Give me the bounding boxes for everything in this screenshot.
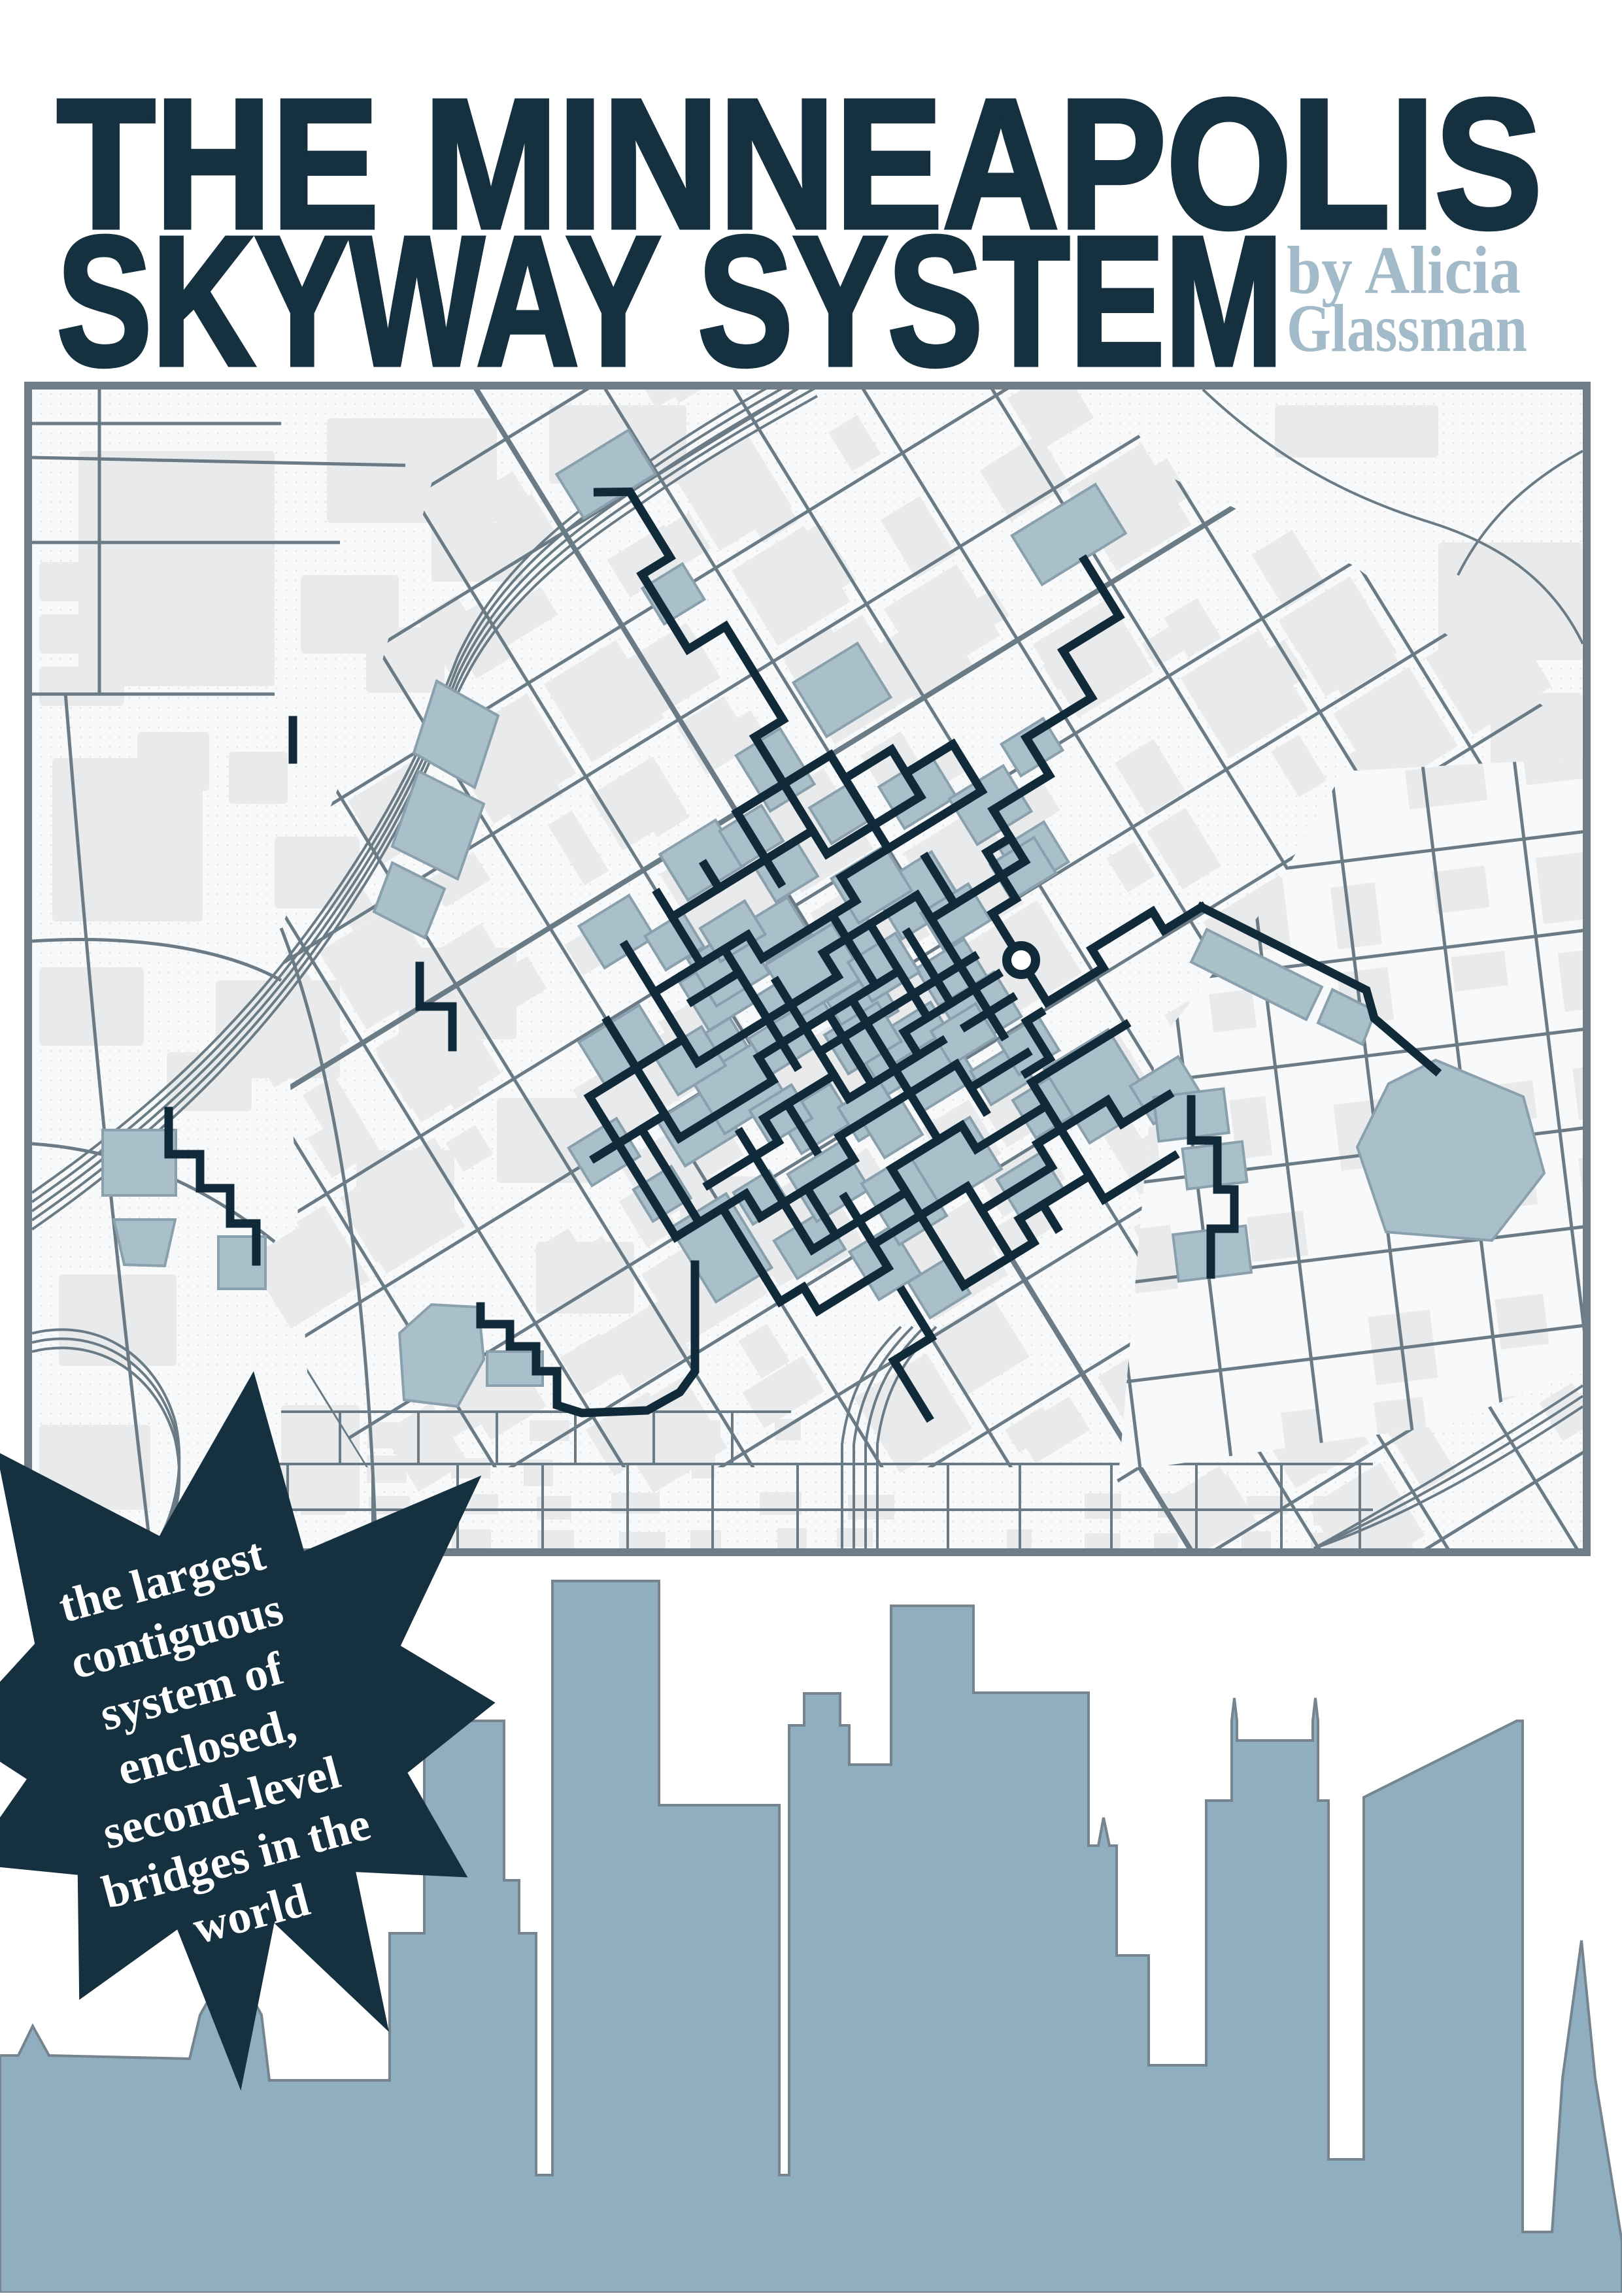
svg-text:Glassman: Glassman (1287, 291, 1527, 366)
svg-text:SKYWAY SYSTEM: SKYWAY SYSTEM (57, 198, 1283, 404)
